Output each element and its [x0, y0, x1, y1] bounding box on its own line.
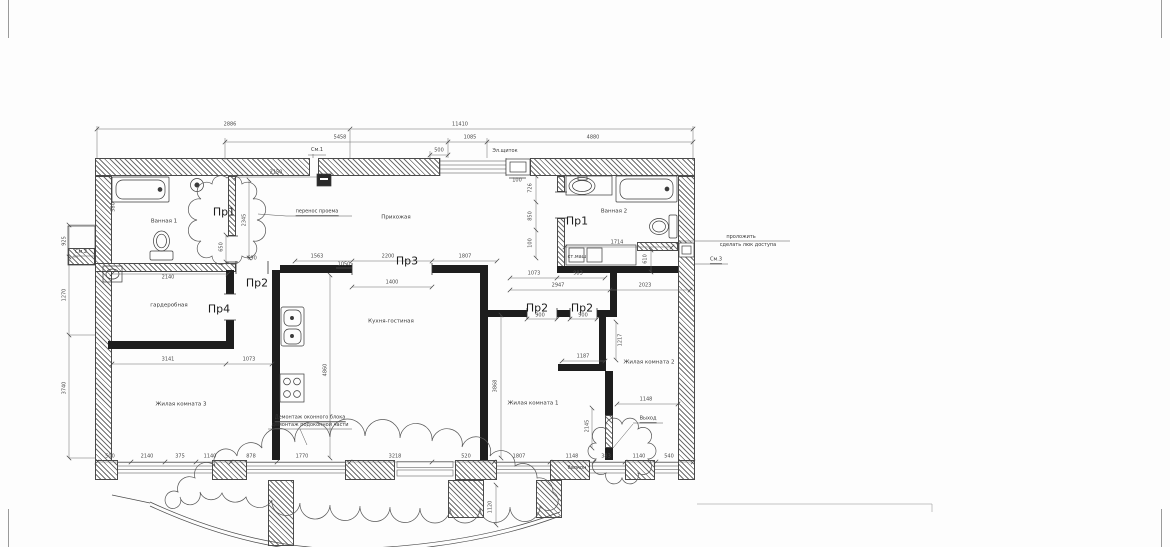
room-label-bath1: Ванная 1	[151, 219, 177, 225]
dim-label: 1714	[611, 241, 624, 246]
dim-label: 850	[529, 211, 534, 221]
dim-label: 2200	[382, 255, 395, 260]
dim-label: 100	[529, 238, 534, 248]
access-hatch-icon	[679, 243, 694, 257]
junction-box-icon	[317, 174, 331, 186]
bathtub-icon	[112, 177, 169, 202]
dim-label: 1085	[464, 136, 477, 141]
dim-label: 1073	[243, 358, 256, 363]
dim-label: 11410	[452, 123, 468, 128]
note-washing-machine: ст.маш	[568, 254, 587, 260]
dim-label: 1217	[619, 334, 624, 347]
dimension-lines	[67, 126, 695, 527]
vent-fan-icon	[191, 179, 204, 192]
toilet-icon	[150, 231, 173, 260]
revision-mark-pr4: Пр4	[208, 304, 230, 315]
dim-label: 500	[105, 455, 115, 460]
dim-label: 2140	[141, 455, 154, 460]
floor-plan-sheet: Ванная 1 Прихожая Ванная 2 гардеробная К…	[0, 0, 1170, 547]
dim-label: 2947	[552, 284, 565, 289]
dim-label: 2140	[162, 276, 175, 281]
dim-label: 1050	[338, 263, 351, 268]
dim-label: 1400	[386, 281, 399, 286]
revision-mark-pr1-right: Пр1	[566, 216, 588, 227]
dim-label: 610	[644, 254, 649, 264]
note-see1: См.1	[311, 147, 323, 153]
dim-label: 3218	[389, 455, 402, 460]
dim-label: 900	[578, 314, 588, 319]
dim-label: 650	[220, 242, 225, 252]
stove-icon	[280, 374, 304, 402]
revision-mark-pr3: Пр3	[396, 256, 418, 267]
dim-label: 1270	[63, 289, 68, 302]
note-electrical-panel: Эл.щиток	[492, 148, 517, 154]
dim-label: 1807	[459, 255, 472, 260]
dim-label: 580	[112, 202, 117, 212]
dim-label: 2150	[270, 171, 283, 176]
room-label-bath2: Ванная 2	[601, 209, 627, 215]
dim-label: 2145	[586, 420, 591, 433]
dim-label: 3740	[63, 382, 68, 395]
room-label-living3: Жилая комната 3	[155, 402, 206, 408]
electrical-box-icon	[506, 159, 530, 178]
kitchen-sink-icon	[281, 307, 304, 346]
note-see3: См.3	[710, 256, 722, 264]
dim-label: 2886	[224, 123, 237, 128]
room-label-living2: Жилая комната 2	[623, 360, 674, 366]
revision-cloud-exit	[588, 418, 656, 484]
note-relocate-opening: перенос проема	[296, 208, 339, 216]
dim-label: 1073	[528, 272, 541, 277]
revision-cloud-pr1	[188, 176, 265, 265]
note-lay-line2: сделать люк доступа	[720, 242, 776, 248]
dim-label: 4860	[324, 364, 329, 377]
dim-label: 1187	[577, 355, 590, 360]
dim-label: 500	[434, 149, 444, 154]
note-demolish-line2: демонтаж подоконной части	[272, 422, 349, 428]
revision-mark-pr1-left: Пр1	[213, 207, 235, 218]
dim-label: 2345	[243, 214, 248, 227]
note-balcony: балкон	[568, 465, 587, 471]
room-label-wardrobe: гардеробная	[150, 303, 187, 309]
bathtub2-icon	[616, 176, 677, 202]
dim-label: 983	[573, 272, 583, 277]
revision-mark-pr2-left: Пр2	[246, 278, 268, 289]
dim-label: 1120	[489, 501, 494, 514]
dim-label: 1140	[204, 455, 217, 460]
dim-label: 3141	[162, 358, 175, 363]
dim-label: 1140	[633, 455, 646, 460]
washbasin-icon	[566, 176, 612, 195]
dim-label: 100	[512, 179, 522, 184]
dim-label: 878	[246, 455, 256, 460]
room-label-kitchen: Кухня-гостиная	[368, 319, 414, 325]
note-lay-line1: проложить	[726, 234, 755, 240]
dim-label: 1563	[311, 255, 324, 260]
revision-cloud-window	[165, 419, 558, 523]
dim-label: 4880	[587, 136, 600, 141]
note-exit: Выход	[640, 415, 657, 423]
toilet2-icon	[650, 215, 678, 238]
dim-label: 726	[529, 183, 534, 193]
note-demolish-line1: Демонтаж оконного блока	[275, 414, 346, 422]
dim-label: 1148	[640, 398, 653, 403]
note-see2: См.2	[75, 249, 87, 255]
room-label-hall: Прихожая	[381, 215, 410, 221]
dim-label: 1807	[513, 455, 526, 460]
dim-label: 383	[601, 455, 611, 460]
dim-label: 2023	[639, 284, 652, 289]
dim-label: 925	[63, 236, 68, 246]
dim-label: 540	[664, 455, 674, 460]
dim-label: 3868	[494, 380, 499, 393]
dim-label: 1148	[566, 455, 579, 460]
dim-label: 1770	[296, 455, 309, 460]
room-label-living1: Жилая комната 1	[507, 401, 558, 407]
dim-label: 900	[535, 314, 545, 319]
dim-label: 690	[247, 257, 257, 262]
dim-label: 375	[175, 455, 185, 460]
dim-label: 5458	[334, 136, 347, 141]
dim-label: 520	[461, 455, 471, 460]
shaft-niche	[68, 226, 95, 265]
